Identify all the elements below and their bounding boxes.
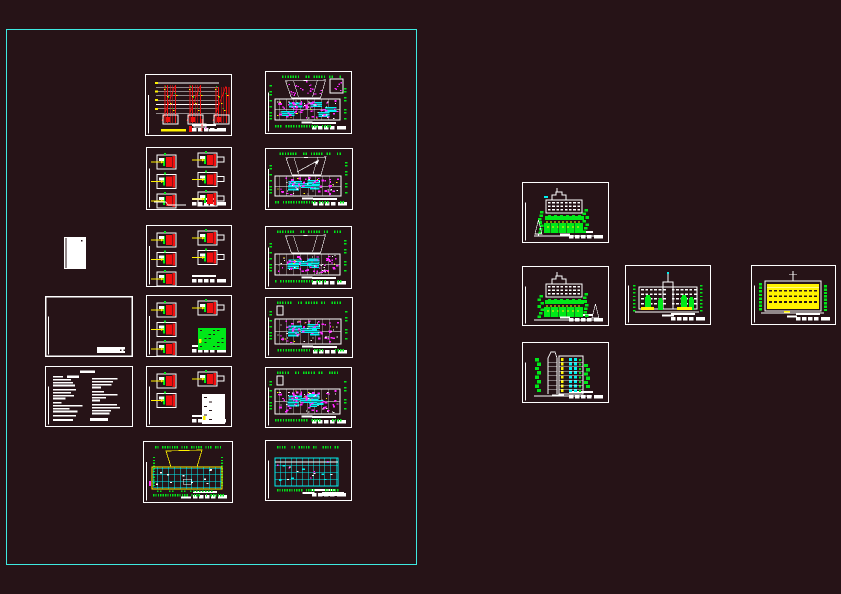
sheet-drawing-plan-5 xyxy=(265,367,352,428)
sheet-drawing-plan-ground xyxy=(143,441,233,503)
sheet-drawing-detail-sheet-1 xyxy=(146,147,232,210)
sheet-elevation-1[interactable] xyxy=(522,182,609,243)
sheet-detail-sheet-4[interactable] xyxy=(146,366,232,427)
sheet-plan-5[interactable] xyxy=(265,367,352,428)
sheet-drawing-plan-4 xyxy=(265,297,353,358)
sheet-detail-sheet-3[interactable] xyxy=(146,295,232,357)
sheet-drawing-plan-6 xyxy=(265,440,352,501)
sheet-drawing-detail-sheet-3 xyxy=(146,295,232,357)
sheet-drawing-plan-3 xyxy=(265,226,352,289)
sheet-elevation-4[interactable] xyxy=(751,265,836,325)
cad-workspace[interactable] xyxy=(0,0,841,594)
sheet-drawing-detail-sheet-2 xyxy=(146,225,232,287)
sheet-drawing-elevation-3 xyxy=(625,265,711,325)
sheet-notes-sheet[interactable] xyxy=(45,366,133,427)
sheet-drawing-notes-sheet xyxy=(45,366,133,427)
sheet-drawing-elevation-4 xyxy=(751,265,836,325)
sheet-drawing-elevation-2 xyxy=(522,266,609,326)
sheet-drawing-detail-sheet-4 xyxy=(146,366,232,427)
sheet-blank-card[interactable] xyxy=(64,237,86,269)
sheet-plan-4[interactable] xyxy=(265,297,353,358)
sheet-drawing-riser-diagram xyxy=(145,74,232,136)
sheet-detail-sheet-2[interactable] xyxy=(146,225,232,287)
sheet-elevation-2[interactable] xyxy=(522,266,609,326)
sheet-detail-sheet-1[interactable] xyxy=(146,147,232,210)
sheet-elevation-3[interactable] xyxy=(625,265,711,325)
sheet-drawing-blank-card xyxy=(64,237,86,269)
sheet-section-sheet[interactable] xyxy=(522,342,609,403)
sheet-drawing-plan-2 xyxy=(265,148,353,210)
sheet-empty-frame[interactable] xyxy=(45,296,133,357)
sheet-drawing-elevation-1 xyxy=(522,182,609,243)
sheet-plan-2[interactable] xyxy=(265,148,353,210)
sheet-drawing-section-sheet xyxy=(522,342,609,403)
sheet-plan-3[interactable] xyxy=(265,226,352,289)
sheet-plan-6[interactable] xyxy=(265,440,352,501)
sheet-plan-1[interactable] xyxy=(265,71,352,134)
sheet-plan-ground[interactable] xyxy=(143,441,233,503)
sheet-riser-diagram[interactable] xyxy=(145,74,232,136)
sheet-drawing-plan-1 xyxy=(265,71,352,134)
sheet-drawing-empty-frame xyxy=(45,296,133,357)
